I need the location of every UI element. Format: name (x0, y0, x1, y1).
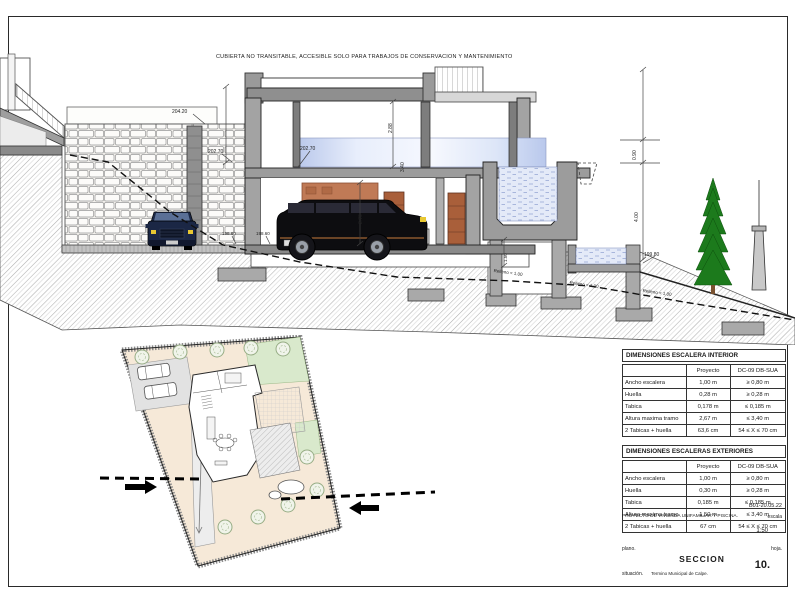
table-cell: 1,00 m (686, 473, 730, 485)
hoja-label: hoja. (771, 546, 782, 552)
section-drawing (0, 50, 795, 345)
cypress-tree (694, 178, 732, 294)
table-row: Huella0,28 m≥ 0,28 m (623, 389, 786, 401)
dimension-label: 2.70 (358, 214, 364, 224)
table-cell: Huella (623, 485, 687, 497)
project-title: PROYECTO DE VIVIENDA UNIFAMILIAR Y PISCI… (622, 514, 740, 520)
table-cell: 0,28 m (686, 389, 730, 401)
table-cell: Tabica (623, 401, 687, 413)
table-cell: Ancho escalera (623, 377, 687, 389)
dimension-label: 198.60 (256, 231, 270, 236)
table-cell: ≥ 0,28 m (730, 389, 785, 401)
escala-label: escala (768, 514, 782, 520)
dimension-label: 0.90 (632, 150, 638, 160)
table-cell: ≥ 0,80 m (730, 377, 785, 389)
table-cell: Altura maxima tramo (623, 413, 687, 425)
table-row: Tabica0,178 m≤ 0,185 m (623, 401, 786, 413)
table-row: Ancho escalera1,00 m≥ 0,80 m (623, 473, 786, 485)
sedan-car (146, 212, 199, 250)
dimension-label: 202.70 (208, 149, 223, 155)
interior-stairs-table: ProyectoDC-09 DB-SUAAncho escalera1,00 m… (622, 364, 786, 437)
table-cell: Huella (623, 389, 687, 401)
table-row: Huella0,30 m≥ 0,28 m (623, 485, 786, 497)
table-cell: ≤ 3,40 m (730, 413, 785, 425)
table-cell: 54 ≤ X ≤ 70 cm (730, 425, 785, 437)
table-cell: 63,6 cm (686, 425, 730, 437)
table-cell: ≥ 0,28 m (730, 485, 785, 497)
table-cell: Ancho escalera (623, 473, 687, 485)
escala-value: 1:50 (622, 528, 782, 534)
table-header-cell (623, 365, 687, 377)
table-header-cell: DC-09 DB-SUA (730, 365, 785, 377)
plano-label: plano. (622, 546, 636, 552)
dimension-label: 202.70 (300, 146, 315, 152)
table-header-cell: Proyecto (686, 461, 730, 473)
situacion-value: Termino Municipal de Calpe. (651, 571, 708, 576)
title-block: B01-20.05.22 PROYECTO DE VIVIENDA UNIFAM… (622, 503, 782, 577)
revision-code: B01-20.05.22 (622, 503, 782, 509)
table-row: Altura maxima tramo2,67 m≤ 3,40 m (623, 413, 786, 425)
table-row: Ancho escalera1,00 m≥ 0,80 m (623, 377, 786, 389)
table-row: 2 Tabicas + huella63,6 cm54 ≤ X ≤ 70 cm (623, 425, 786, 437)
dimension-label: 4.00 (634, 212, 640, 222)
parking-area (128, 357, 195, 411)
site-plan (95, 335, 440, 590)
table-title-exterior: DIMENSIONES ESCALERAS EXTERIORES (622, 445, 786, 458)
dimension-label: 1.50 (503, 253, 508, 262)
table-header-cell: DC-09 DB-SUA (730, 461, 785, 473)
dimension-label: 2.88 (388, 123, 394, 133)
table-cell: 0,178 m (686, 401, 730, 413)
boundary-post (752, 180, 766, 290)
neighbour-structure (0, 54, 64, 155)
dimension-label: 204.20 (172, 109, 187, 115)
dimension-label: 198.60 (222, 231, 236, 236)
hoja-value: 10. (755, 559, 770, 571)
table-cell: 1,00 m (686, 377, 730, 389)
table-header-cell: Proyecto (686, 365, 730, 377)
table-header-cell (623, 461, 687, 473)
table-cell: 0,30 m (686, 485, 730, 497)
dimension-label: 199.80 (644, 252, 659, 258)
table-cell: ≤ 0,185 m (730, 401, 785, 413)
table-cell: 2,67 m (686, 413, 730, 425)
situacion-label: situación. (622, 571, 643, 577)
pool (483, 162, 597, 240)
table-title-interior: DIMENSIONES ESCALERA INTERIOR (622, 349, 786, 362)
table-cell: 2 Tabicas + huella (623, 425, 687, 437)
dimension-label: 3.40 (400, 162, 406, 172)
table-cell: ≥ 0,80 m (730, 473, 785, 485)
